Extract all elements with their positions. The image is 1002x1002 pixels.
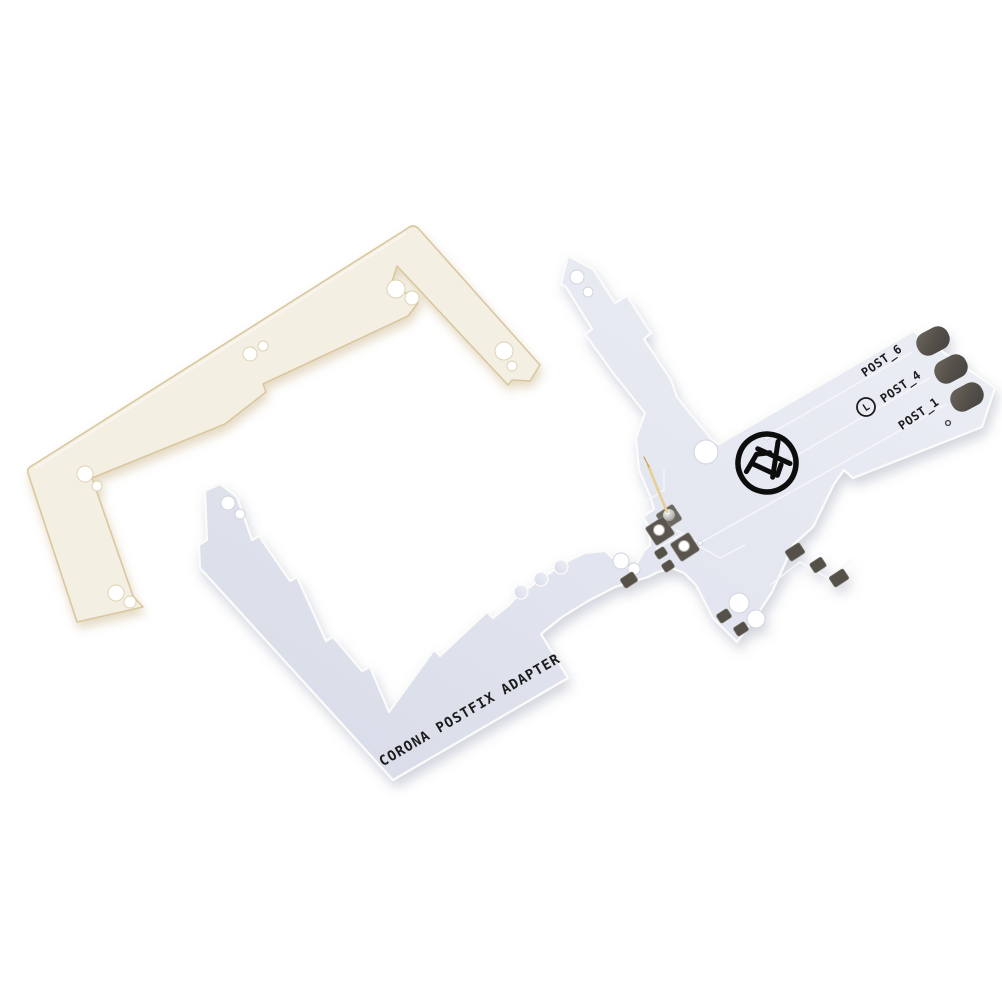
pad-hole: [654, 525, 665, 536]
solder-ball: [663, 509, 675, 521]
cream-edge-highlight: [35, 233, 406, 468]
pad-hole: [679, 541, 690, 552]
cream-spacer-frame: [28, 226, 540, 622]
product-photo: POST_6 POST_4 POST_1 L CORONA POSTFIX AD…: [0, 0, 1002, 1002]
photo-canvas: POST_6 POST_4 POST_1 L CORONA POSTFIX AD…: [0, 0, 1002, 1002]
